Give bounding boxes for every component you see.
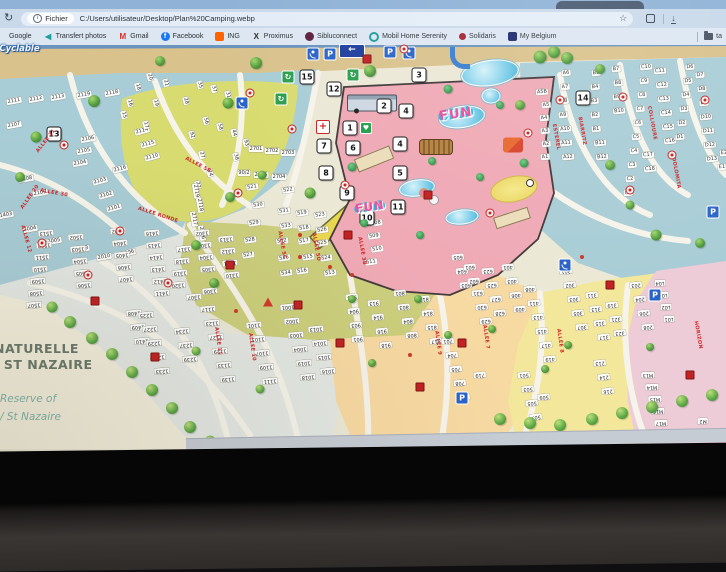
gmail-icon: M bbox=[118, 32, 127, 41]
plot-number: 216 bbox=[602, 388, 614, 395]
plot-number: A9 bbox=[558, 112, 567, 119]
plot-number: 2111 bbox=[6, 97, 22, 105]
plot-number: 2703 bbox=[281, 150, 296, 156]
handicap-icon bbox=[559, 259, 572, 272]
alley-label: HORIZON bbox=[693, 321, 704, 350]
plot-number: 208 bbox=[642, 324, 654, 331]
waterslide-illustration bbox=[450, 47, 470, 69]
plot-number: 303 bbox=[568, 296, 580, 303]
plot-number: D4 bbox=[681, 92, 691, 99]
tree-icon bbox=[534, 51, 547, 64]
info-icon: i bbox=[33, 14, 42, 23]
beach-volley-sand bbox=[488, 171, 540, 206]
plot-number: D3 bbox=[679, 106, 689, 113]
plot-number: S15 bbox=[302, 253, 314, 261]
globe-teal-icon bbox=[369, 32, 379, 42]
hydrant-marker bbox=[84, 271, 93, 280]
tree-icon bbox=[414, 295, 422, 303]
firstaid-icon: + bbox=[316, 120, 330, 134]
bookmark-item[interactable]: MGmail bbox=[118, 32, 148, 41]
plot-number: A7 bbox=[560, 84, 569, 91]
plot-number: A12 bbox=[562, 153, 574, 160]
plot-number: 305 bbox=[572, 310, 584, 317]
plot-number: 1406 bbox=[116, 263, 131, 270]
plot-number: 1229 bbox=[146, 339, 161, 346]
plot-number: D7 bbox=[695, 72, 705, 79]
bookmark-star-icon[interactable]: ☆ bbox=[619, 13, 627, 24]
plot-number: D12 bbox=[704, 141, 717, 148]
bookmark-label: ING bbox=[227, 33, 239, 40]
tree-icon bbox=[646, 401, 658, 413]
plot-number: 1014 bbox=[312, 339, 327, 346]
red-dot-marker bbox=[298, 233, 302, 237]
plot-number: 1508 bbox=[28, 289, 43, 296]
tree-icon bbox=[651, 230, 662, 241]
bookmark-item[interactable]: XProximus bbox=[252, 32, 293, 41]
plot-number: 2105 bbox=[76, 147, 92, 155]
tree-icon bbox=[676, 395, 688, 407]
tree-icon bbox=[368, 359, 376, 367]
alley-label: ALLEE RONDE bbox=[137, 206, 179, 225]
plot-number: A2 bbox=[541, 141, 550, 148]
plot-number: 1310 bbox=[224, 271, 239, 278]
plot-number: 2118 bbox=[104, 89, 120, 97]
plot-number: 203 bbox=[630, 282, 642, 289]
plot-number: 1320 bbox=[170, 281, 185, 288]
bookmark-label: Sibluconnect bbox=[317, 33, 357, 40]
tree-icon bbox=[192, 347, 201, 356]
plot-number: S16 bbox=[296, 267, 308, 275]
plot-number: 1413 bbox=[150, 265, 165, 272]
plot-number: A5 bbox=[541, 102, 550, 109]
plot-number: 601 bbox=[464, 264, 476, 271]
plot-number: 903 bbox=[350, 322, 362, 329]
plot-number: 315 bbox=[594, 320, 606, 327]
tree-icon bbox=[554, 419, 566, 431]
handicap-icon bbox=[236, 97, 249, 110]
plot-number: M2 bbox=[698, 418, 708, 424]
plot-number: 814 bbox=[422, 310, 434, 317]
plot-number: 1312 bbox=[220, 247, 235, 254]
plot-number: 803 bbox=[398, 304, 410, 311]
parking-icon: P bbox=[456, 392, 469, 405]
plot-number: S29 bbox=[248, 219, 260, 227]
plot-number: 417 bbox=[540, 342, 552, 349]
plot-number: 916 bbox=[376, 328, 388, 335]
solidaris-icon bbox=[459, 33, 466, 40]
plot-number: D2 bbox=[677, 120, 687, 127]
download-icon[interactable]: ↓ bbox=[671, 14, 676, 24]
tree-icon bbox=[191, 240, 201, 250]
plot-number: 627 bbox=[490, 296, 502, 303]
plot-number: S19 bbox=[296, 209, 308, 217]
plot-number: 625 bbox=[486, 282, 498, 289]
plot-number: 1404 bbox=[112, 239, 127, 246]
tree-icon bbox=[64, 316, 76, 328]
plot-number: 58 bbox=[216, 122, 224, 132]
reserve-label-fr-1: NATURELLE bbox=[0, 341, 79, 356]
wooden-bridge-illustration bbox=[419, 139, 453, 155]
recycle-icon: ↻ bbox=[347, 69, 360, 82]
plot-number: D13 bbox=[706, 155, 719, 162]
plot-number: 403 bbox=[506, 278, 518, 285]
bookmark-item[interactable]: Sibluconnect bbox=[305, 32, 357, 41]
plot-number: 1123 bbox=[204, 319, 219, 326]
plot-number: 1227 bbox=[142, 325, 157, 332]
plot-number: 628 bbox=[494, 310, 506, 317]
plot-number: C4 bbox=[629, 148, 638, 155]
plot-number: 2702 bbox=[265, 148, 280, 154]
plot-number: 1015 bbox=[316, 353, 331, 360]
parking-icon: P bbox=[384, 46, 397, 59]
red-dot-marker bbox=[580, 255, 584, 259]
plot-number: C2 bbox=[625, 176, 634, 183]
handicap-icon bbox=[307, 48, 320, 61]
tree-icon bbox=[106, 348, 118, 360]
plot-number: 1403 bbox=[0, 211, 14, 219]
plot-number: A1 bbox=[540, 154, 549, 161]
facebook-icon: f bbox=[161, 32, 170, 41]
utility-marker bbox=[363, 55, 372, 64]
file-scheme-chip[interactable]: i Fichier bbox=[27, 13, 74, 24]
plot-number: 719 bbox=[474, 372, 486, 379]
plot-number: 1509 bbox=[30, 277, 45, 284]
plot-number: 623 bbox=[482, 268, 494, 275]
plot-number: 321 bbox=[610, 316, 622, 323]
plot-number: A4 bbox=[539, 115, 548, 122]
playground-illustration bbox=[503, 138, 523, 153]
alley-label: ALLEE 3B bbox=[357, 236, 368, 265]
tree-icon bbox=[258, 171, 267, 180]
plot-number: 914 bbox=[372, 314, 384, 321]
plot-number: 2110 bbox=[144, 152, 160, 162]
plot-number: 918 bbox=[380, 342, 392, 349]
plot-number: C12 bbox=[656, 81, 668, 88]
laptop-screen: ↻ i Fichier C:/Users/utilisateur/Desktop… bbox=[0, 0, 726, 452]
bookmark-label: Google bbox=[9, 33, 32, 40]
utility-marker bbox=[606, 281, 615, 290]
plot-number: B8 bbox=[613, 80, 622, 87]
plot-number: A10 bbox=[559, 125, 571, 132]
hydrant-marker bbox=[556, 96, 565, 105]
plot-number: B11 bbox=[594, 139, 606, 146]
plot-number: 38 bbox=[232, 152, 240, 162]
tree-icon bbox=[706, 389, 718, 401]
plot-number: 1318 bbox=[174, 257, 189, 264]
parking-icon: P bbox=[707, 206, 720, 219]
plot-number: 323 bbox=[614, 330, 626, 337]
plot-number: C5 bbox=[631, 134, 640, 141]
bookmark-item[interactable]: My Belgium bbox=[508, 32, 557, 41]
proximus-icon: X bbox=[252, 32, 261, 41]
plot-number: S10 bbox=[371, 245, 383, 253]
plot-number: 808 bbox=[406, 332, 418, 339]
plot-number: 20 bbox=[146, 72, 154, 82]
plot-number: C9 bbox=[639, 78, 648, 85]
tree-icon bbox=[541, 365, 549, 373]
plot-number: 1511 bbox=[34, 253, 49, 260]
bookmark-label: Solidaris bbox=[469, 33, 496, 40]
plot-number: 413 bbox=[532, 314, 544, 321]
plot-number: 1319 bbox=[172, 269, 187, 276]
plot-number: S26 bbox=[316, 226, 328, 234]
plot-number: D5 bbox=[683, 78, 693, 85]
plot-number: 317 bbox=[598, 334, 610, 341]
tree-icon bbox=[86, 332, 98, 344]
plot-number: L02 bbox=[660, 304, 671, 310]
browser-tab[interactable] bbox=[556, 1, 644, 9]
plot-number: S28 bbox=[244, 236, 256, 244]
tree-icon bbox=[31, 132, 42, 143]
arrow-teal-icon: ◀ bbox=[44, 32, 53, 41]
plot-number: 21 bbox=[162, 78, 170, 88]
overflow-folder-label: ta bbox=[716, 33, 722, 40]
plot-number: B2 bbox=[590, 112, 599, 119]
tree-icon bbox=[616, 407, 628, 419]
plot-number: 2104 bbox=[72, 159, 88, 167]
alley-label: ALLEE 8 bbox=[555, 328, 564, 353]
plot-number: 1016 bbox=[320, 367, 335, 374]
map-badge: 3 bbox=[412, 68, 427, 83]
bookmark-label: My Belgium bbox=[520, 33, 557, 40]
bookmark-item[interactable]: Mobil Home Serenity bbox=[369, 32, 447, 42]
plot-number: A6 bbox=[561, 70, 570, 77]
reload-icon[interactable]: ↻ bbox=[4, 13, 13, 24]
plot-number: 406 bbox=[510, 292, 522, 299]
plot-number: 16 bbox=[126, 98, 134, 108]
bookmark-item[interactable]: ING bbox=[215, 32, 239, 41]
tree-icon bbox=[595, 64, 605, 74]
plot-number: S09 bbox=[368, 232, 380, 240]
plot-number: S31 bbox=[278, 207, 290, 215]
map-badge: 15 bbox=[300, 70, 315, 85]
tree-icon bbox=[256, 385, 265, 394]
browser-toolbar: ↻ i Fichier C:/Users/utilisateur/Desktop… bbox=[0, 9, 726, 28]
exit-icon: ← bbox=[339, 44, 365, 58]
palm-tree-icon bbox=[520, 159, 529, 168]
plot-number: 15 bbox=[120, 110, 128, 120]
plot-number: 1415 bbox=[146, 241, 161, 248]
plot-number: C18 bbox=[644, 165, 656, 172]
plot-number: L01 bbox=[663, 316, 674, 322]
plot-number: C6 bbox=[633, 120, 642, 127]
bike-path-label: Piste Cyclable bbox=[0, 44, 40, 54]
plot-number: B12 bbox=[596, 153, 608, 160]
palm-tree-icon bbox=[348, 163, 357, 172]
address-bar[interactable]: i Fichier C:/Users/utilisateur/Desktop/P… bbox=[21, 12, 633, 26]
red-dot-marker bbox=[328, 265, 332, 269]
plot-number: 1407 bbox=[118, 275, 133, 282]
red-dot-marker bbox=[234, 309, 238, 313]
tree-icon bbox=[605, 160, 615, 170]
bookmark-item[interactable]: fFacebook bbox=[161, 32, 204, 41]
map-badge: 11 bbox=[391, 200, 406, 215]
plot-number: 503 bbox=[522, 386, 534, 393]
palm-tree-icon bbox=[360, 219, 368, 227]
utility-marker bbox=[458, 339, 467, 348]
bookmark-label: Gmail bbox=[130, 33, 148, 40]
bookmark-label: Mobil Home Serenity bbox=[382, 33, 447, 40]
plot-number: L04 bbox=[654, 280, 665, 286]
plot-number: 1133 bbox=[216, 361, 231, 368]
plot-number: 1416 bbox=[144, 229, 159, 236]
map-badge: 1 bbox=[343, 121, 358, 136]
plot-number: M17 bbox=[655, 420, 668, 426]
plot-number: 1307 bbox=[186, 293, 201, 300]
plot-number: 27 bbox=[198, 150, 206, 160]
url-text[interactable]: C:/Users/utilisateur/Desktop/Plan%20Camp… bbox=[80, 14, 619, 23]
plot-number: 705 bbox=[450, 366, 462, 373]
folder-icon bbox=[704, 33, 713, 40]
tree-icon bbox=[695, 238, 705, 248]
plot-number: 1019 bbox=[296, 359, 311, 366]
plot-number: 904 bbox=[348, 308, 360, 315]
plot-number: 1317 bbox=[176, 245, 191, 252]
tree-icon bbox=[488, 325, 496, 333]
bookmarks-overflow[interactable]: ta bbox=[694, 32, 722, 42]
plot-number: 804 bbox=[402, 318, 414, 325]
bookmark-item[interactable]: ◀Transfert photos bbox=[44, 32, 107, 41]
tree-icon bbox=[223, 98, 234, 109]
plot-number: C7 bbox=[635, 106, 644, 113]
plot-number: E2 bbox=[720, 150, 726, 157]
plot-number: 630 bbox=[476, 304, 488, 311]
utility-marker bbox=[416, 383, 425, 392]
plot-number: 1313 bbox=[218, 235, 233, 242]
bookmark-item[interactable]: Solidaris bbox=[459, 33, 496, 40]
hydrant-marker bbox=[486, 209, 495, 218]
utility-marker bbox=[151, 353, 160, 362]
tree-icon bbox=[564, 341, 572, 349]
tree-icon bbox=[305, 188, 316, 199]
plot-number: 411 bbox=[528, 300, 540, 307]
tree-icon bbox=[126, 366, 138, 378]
plot-number: A5B bbox=[536, 88, 549, 95]
browser-tab-strip bbox=[0, 0, 726, 9]
plot-number: 2101 bbox=[106, 203, 122, 213]
plot-number: B3 bbox=[589, 98, 598, 105]
map-badge: 4 bbox=[399, 104, 414, 119]
plot-number: 1111 bbox=[262, 377, 277, 384]
plot-number: 815 bbox=[426, 324, 438, 331]
plot-number: C15 bbox=[662, 123, 674, 130]
tree-icon bbox=[15, 172, 25, 182]
hydrant-marker bbox=[524, 129, 533, 138]
map-badge: 2 bbox=[377, 99, 392, 114]
plot-number: 2106 bbox=[80, 135, 96, 143]
plot-number: 19 bbox=[152, 98, 160, 108]
tree-icon bbox=[364, 65, 376, 77]
tree-icon bbox=[561, 52, 573, 64]
plot-number: S33 bbox=[280, 222, 292, 230]
plot-number: 1225 bbox=[138, 311, 153, 318]
map-badge: 14 bbox=[576, 91, 591, 106]
plot-number: 1018 bbox=[300, 373, 315, 380]
plot-number: 1013 bbox=[308, 325, 323, 332]
hydrant-marker bbox=[246, 89, 255, 98]
siblu-icon bbox=[305, 32, 314, 41]
plot-number: 319 bbox=[606, 302, 618, 309]
tree-icon bbox=[626, 201, 635, 210]
football-icon bbox=[526, 179, 534, 187]
plot-number: 605 bbox=[452, 254, 464, 261]
tree-icon bbox=[209, 278, 219, 288]
alley-label: ALLEE 20 bbox=[19, 184, 40, 211]
plot-number: B7 bbox=[611, 66, 620, 73]
plot-number: 913 bbox=[368, 300, 380, 307]
plot-number: 1506 bbox=[76, 281, 91, 288]
hydrant-marker bbox=[116, 227, 125, 236]
plot-number: 213 bbox=[594, 360, 606, 367]
plot-number: M13 bbox=[642, 372, 655, 378]
plot-number: 307 bbox=[576, 324, 588, 331]
hydrant-marker bbox=[60, 141, 69, 150]
plot-number: 1234 bbox=[174, 327, 189, 334]
plot-number: C8 bbox=[637, 92, 646, 99]
plot-number: 1233 bbox=[154, 367, 169, 374]
plot-number: 204 bbox=[634, 296, 646, 303]
plot-number: 313 bbox=[590, 306, 602, 313]
plot-number: 214 bbox=[598, 374, 610, 381]
plot-number: 2102 bbox=[98, 190, 114, 200]
tree-icon bbox=[586, 413, 598, 425]
plot-number: 1507 bbox=[26, 301, 41, 308]
palm-tree-icon bbox=[416, 231, 424, 239]
plot-number: 1405 bbox=[114, 251, 129, 258]
plot-number: 92 bbox=[188, 130, 196, 140]
toolbar-right-icons: ↓ bbox=[641, 14, 680, 24]
map-annotations: Piste Cyclable NATURELLE / ST NAZAIRE Re… bbox=[0, 45, 726, 449]
plot-number: S23 bbox=[314, 211, 326, 219]
plot-number: E1 bbox=[718, 164, 726, 171]
plot-number: 704 bbox=[446, 352, 458, 359]
extensions-icon[interactable] bbox=[646, 14, 655, 23]
toolbar-separator bbox=[663, 14, 664, 24]
plot-number: S21 bbox=[246, 183, 258, 191]
plot-number: A11 bbox=[560, 139, 572, 146]
plot-number: 18 bbox=[134, 82, 142, 92]
map-badge: 8 bbox=[319, 166, 334, 181]
plot-number: 1513 bbox=[38, 229, 53, 236]
plot-number: S24 bbox=[320, 254, 332, 262]
tree-icon bbox=[146, 384, 158, 396]
bookmarks-separator bbox=[697, 32, 698, 42]
plot-number: 2717 bbox=[190, 211, 198, 227]
map-badge: 4 bbox=[393, 137, 408, 152]
bookmark-item[interactable]: Google bbox=[6, 33, 32, 40]
tree-icon bbox=[348, 295, 356, 303]
plot-number: 901 bbox=[352, 336, 364, 343]
plot-number: 501 bbox=[518, 372, 530, 379]
laptop-bezel bbox=[0, 442, 726, 571]
plot-number: S34 bbox=[280, 269, 292, 277]
plot-number: 1002 bbox=[284, 317, 299, 324]
deck-court bbox=[493, 207, 531, 230]
red-dot-marker bbox=[408, 353, 412, 357]
plot-number: 1414 bbox=[148, 253, 163, 260]
hydrant-marker bbox=[341, 181, 350, 190]
plot-number: 1504 bbox=[72, 257, 87, 264]
recycle-icon: ↻ bbox=[275, 93, 288, 106]
utility-marker bbox=[686, 371, 695, 380]
tree-icon bbox=[646, 343, 654, 351]
hydrant-marker bbox=[164, 279, 173, 288]
plot-number: D6 bbox=[685, 64, 695, 71]
tree-icon bbox=[444, 331, 452, 339]
plot-number: C11 bbox=[654, 67, 666, 74]
plot-number: 90/2 bbox=[237, 170, 250, 176]
plot-number: 505 bbox=[526, 400, 538, 407]
